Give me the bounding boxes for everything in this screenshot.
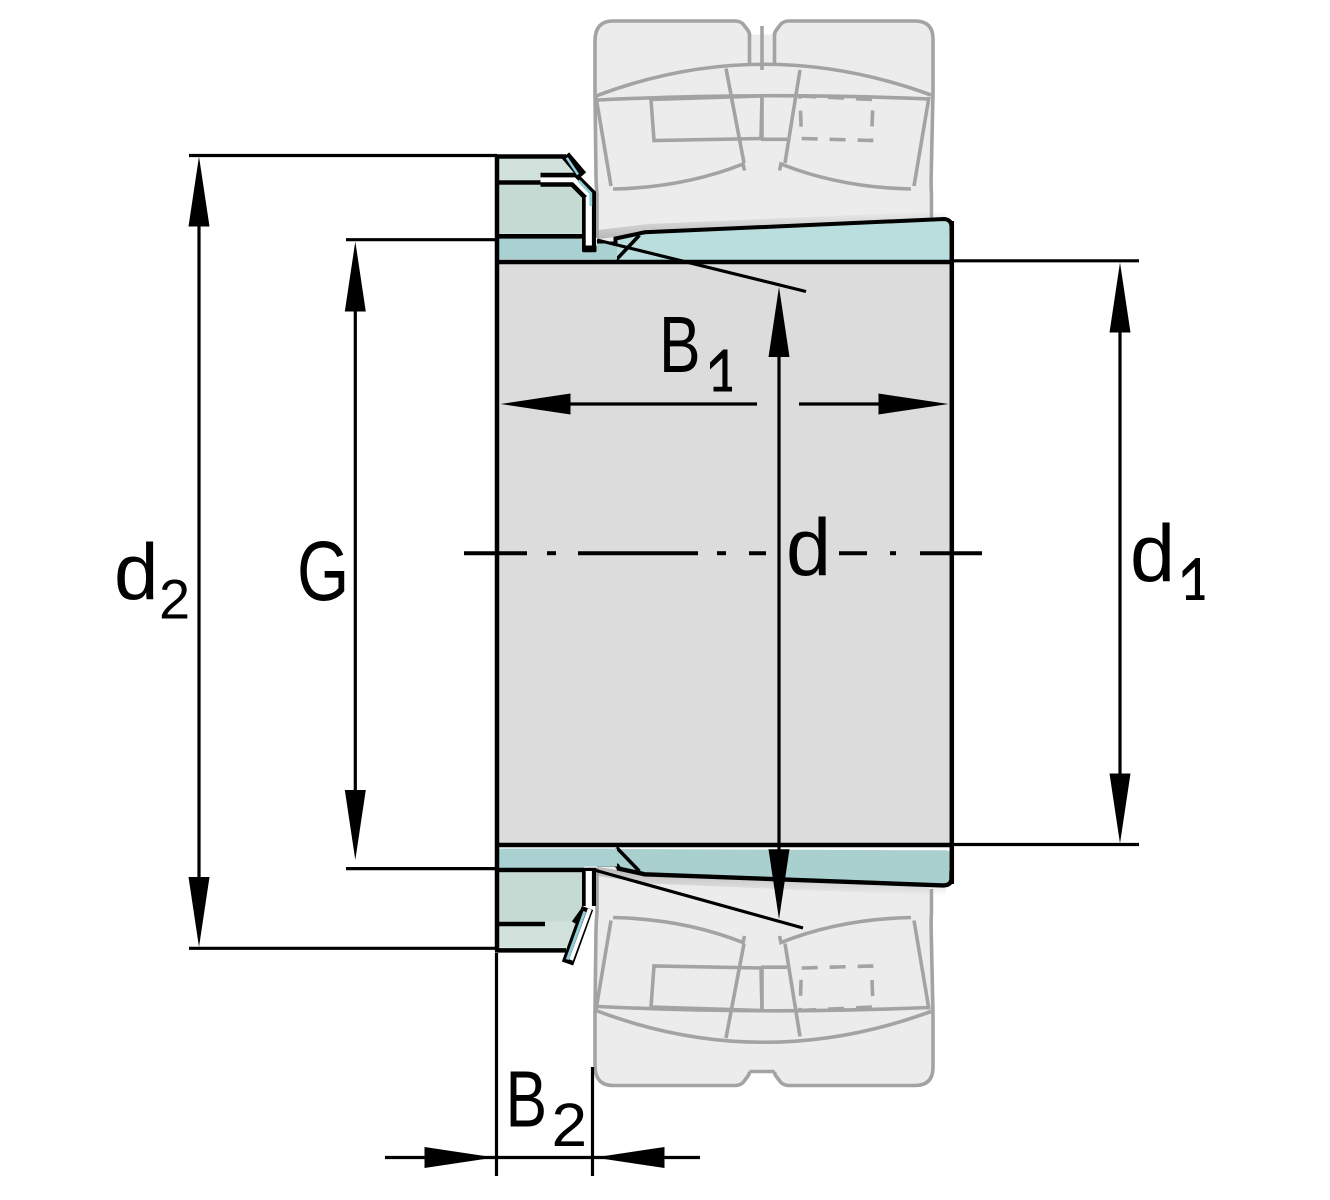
svg-text:d: d bbox=[114, 528, 159, 617]
svg-text:B: B bbox=[659, 301, 701, 390]
svg-text:2: 2 bbox=[552, 1091, 588, 1159]
svg-text:2: 2 bbox=[159, 568, 190, 631]
svg-text:d: d bbox=[1130, 509, 1175, 599]
svg-text:G: G bbox=[297, 525, 349, 619]
svg-text:B: B bbox=[506, 1055, 548, 1144]
svg-text:d: d bbox=[786, 503, 831, 593]
